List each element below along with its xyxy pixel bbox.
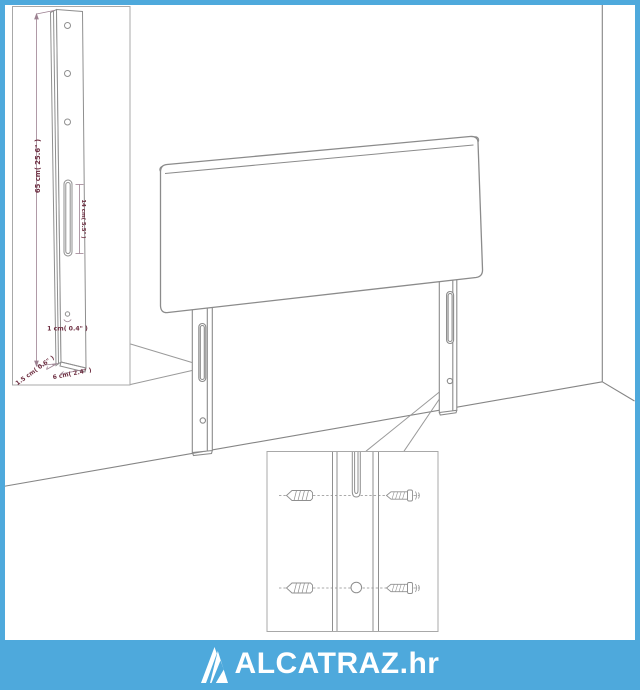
leg-detail-front-face (57, 10, 87, 369)
headboard-leg-left (192, 298, 212, 456)
assembly-diagram: 65 cm( 25.6" ) 14 cm( 5.5" ) 1 cm( 0.4" … (0, 0, 640, 640)
frame-border-right (635, 0, 640, 690)
leg-left-hole (200, 418, 205, 423)
callout-lines (131, 344, 450, 451)
dim-label-hole-diameter: 1 cm( 0.4" ) (47, 326, 88, 333)
brand-bar: ALCATRAZ.hr (0, 640, 640, 690)
leg-detail-inset: 65 cm( 25.6" ) 14 cm( 5.5" ) 1 cm( 0.4" … (13, 7, 131, 388)
brand-name: ALCATRAZ.hr (235, 649, 440, 681)
leg-detail-drawing (51, 10, 87, 373)
frame-border-left (0, 0, 5, 690)
callout-left-lower (131, 371, 193, 385)
frame-border-top (0, 0, 640, 5)
product-image: 65 cm( 25.6" ) 14 cm( 5.5" ) 1 cm( 0.4" … (0, 0, 640, 690)
leg-right-hole (447, 378, 452, 383)
callout-right-outer (366, 384, 450, 452)
panel-face (161, 136, 483, 312)
brand-triangle-a-icon (201, 647, 228, 683)
floor-line-right (602, 382, 634, 401)
dim-label-slot-length: 14 cm( 5.5" ) (80, 199, 86, 238)
mounting-detail-inset (267, 452, 438, 632)
callout-left-upper (131, 344, 193, 363)
dim-label-leg-height: 65 cm( 25.6" ) (34, 139, 42, 193)
headboard-leg-right (439, 278, 457, 415)
headboard-panel (160, 136, 483, 312)
